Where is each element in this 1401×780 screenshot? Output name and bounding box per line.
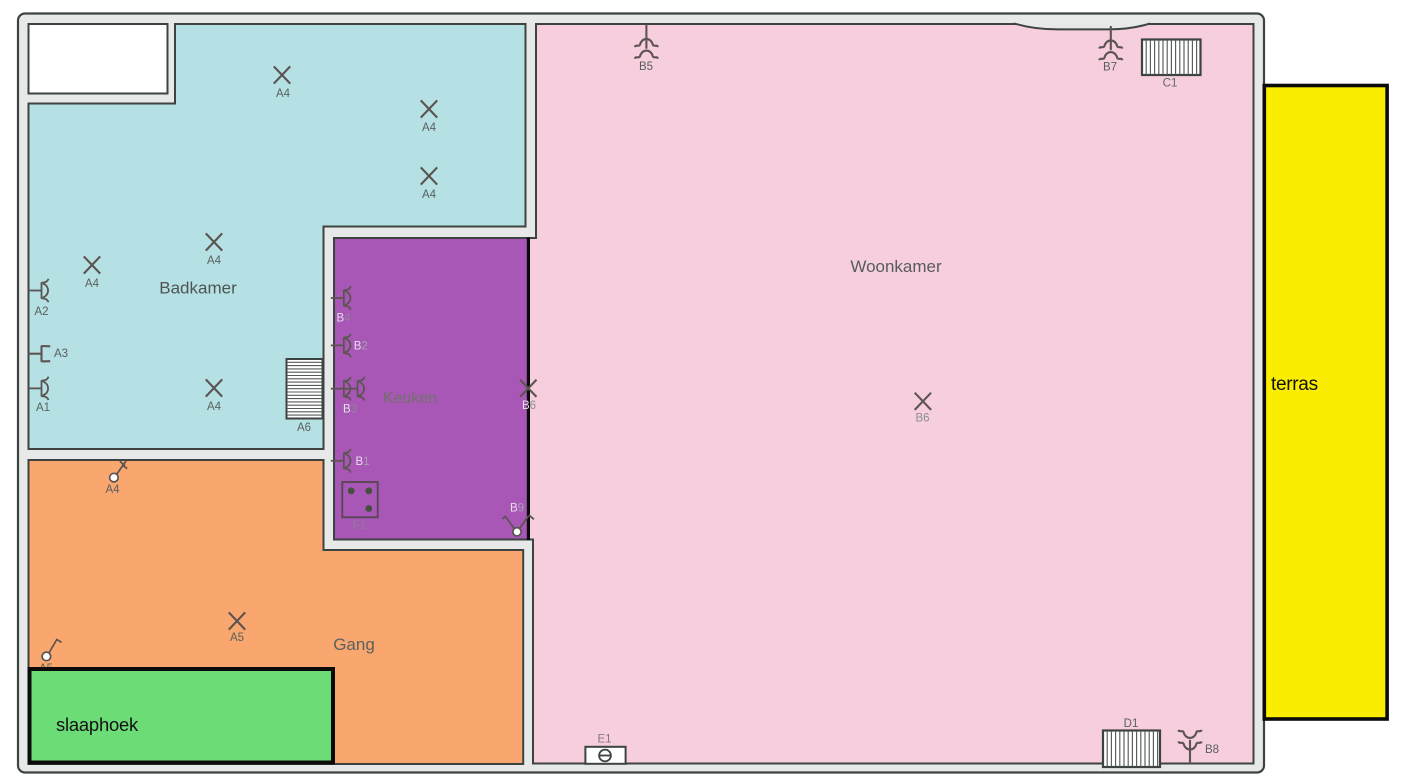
svg-text:A4: A4 (207, 401, 222, 413)
svg-text:B1: B1 (355, 456, 369, 468)
svg-text:Woonkamer: Woonkamer (850, 257, 942, 276)
svg-text:Gang: Gang (333, 635, 375, 654)
svg-text:B6: B6 (915, 413, 929, 425)
svg-text:slaaphoek: slaaphoek (56, 714, 139, 735)
svg-text:A4: A4 (207, 255, 222, 267)
svg-text:E1: E1 (597, 734, 611, 746)
svg-text:Badkamer: Badkamer (159, 279, 237, 298)
svg-text:B6: B6 (522, 400, 536, 412)
svg-text:B3: B3 (343, 403, 357, 415)
svg-text:terras: terras (1271, 374, 1318, 395)
svg-text:A4: A4 (105, 484, 120, 496)
svg-text:A4: A4 (85, 278, 100, 290)
svg-text:A4: A4 (422, 189, 437, 201)
svg-text:A1: A1 (36, 402, 50, 414)
svg-text:Keuken: Keuken (383, 390, 437, 407)
svg-text:A5: A5 (230, 632, 244, 644)
svg-text:B5: B5 (639, 61, 653, 73)
svg-text:A4: A4 (276, 88, 291, 100)
svg-text:D1: D1 (1124, 718, 1139, 730)
svg-text:B4: B4 (336, 313, 351, 325)
svg-text:A6: A6 (297, 422, 311, 434)
svg-text:A4: A4 (422, 122, 437, 134)
svg-text:C1: C1 (1163, 78, 1178, 90)
svg-text:B2: B2 (354, 340, 368, 352)
svg-text:B9: B9 (510, 503, 524, 515)
svg-text:F1: F1 (353, 520, 366, 532)
svg-text:A2: A2 (34, 306, 48, 318)
svg-text:A3: A3 (54, 348, 68, 360)
svg-text:B8: B8 (1205, 744, 1219, 756)
svg-text:B7: B7 (1103, 62, 1117, 74)
